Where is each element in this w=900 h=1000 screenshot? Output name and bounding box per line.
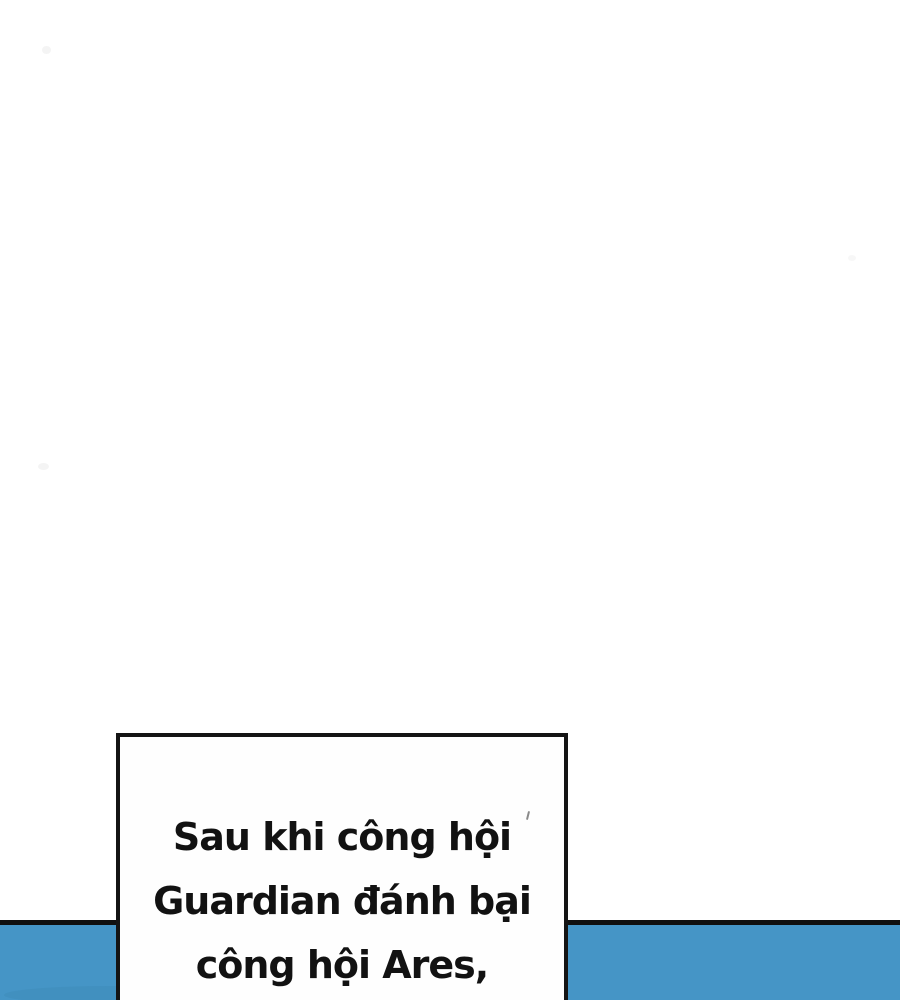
paper-speck <box>38 463 49 470</box>
caption-line-2: Guardian đánh bại <box>120 869 564 933</box>
webtoon-panel: Sau khi công hội Guardian đánh bại công … <box>0 0 900 1000</box>
paper-speck <box>42 46 51 54</box>
caption-box: Sau khi công hội Guardian đánh bại công … <box>116 733 568 1000</box>
caption-text: Sau khi công hội Guardian đánh bại công … <box>120 805 564 997</box>
caption-line-1: Sau khi công hội <box>120 805 564 869</box>
caption-line-3: công hội Ares, <box>120 933 564 997</box>
paper-speck <box>848 255 856 261</box>
